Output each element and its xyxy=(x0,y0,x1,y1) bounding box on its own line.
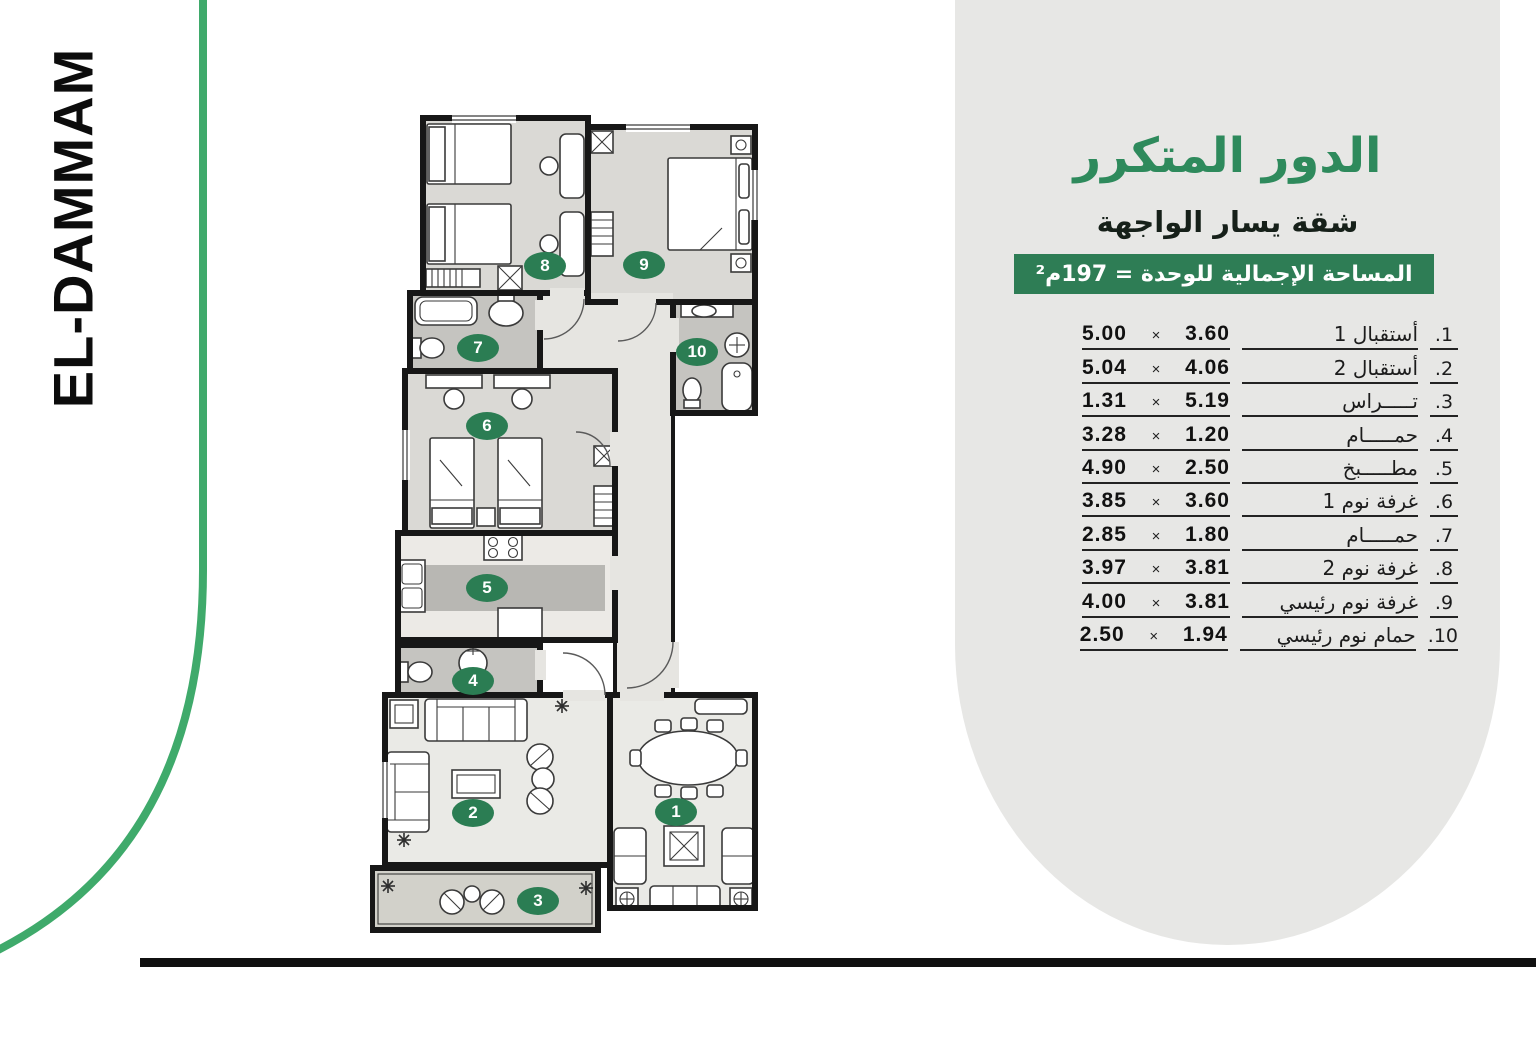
room-name: غرفة نوم 2 xyxy=(1242,556,1418,584)
room-badge-5: 5 xyxy=(466,574,508,602)
room-badge-1: 1 xyxy=(655,798,697,826)
room-name: حمام نوم رئيسي xyxy=(1240,623,1416,651)
room-width: 5.04 xyxy=(1082,356,1127,380)
room-dimension-row: 9. غرفة نوم رئيسي 4.00 × 3.81 xyxy=(1007,584,1458,617)
room-dimension-row: 1. أستقبال 1 5.00 × 3.60 xyxy=(1007,317,1458,350)
brochure-page: EL-DAMMAM xyxy=(0,0,1536,1057)
room-width: 2.50 xyxy=(1080,623,1125,647)
room-height: 1.94 xyxy=(1183,623,1228,647)
room-number: 7. xyxy=(1430,525,1458,551)
room-height: 2.50 xyxy=(1185,456,1230,480)
room-dimensions: 2.85 × 1.80 xyxy=(1082,523,1230,551)
room-number: 5. xyxy=(1430,458,1458,484)
room-dimension-row: 6. غرفة نوم 1 3.85 × 3.60 xyxy=(1007,484,1458,517)
times-symbol: × xyxy=(1152,461,1161,478)
room-height: 1.80 xyxy=(1185,523,1230,547)
room-badge-9: 9 xyxy=(623,251,665,279)
times-symbol: × xyxy=(1152,327,1161,344)
room-dimensions: 2.50 × 1.94 xyxy=(1080,623,1228,651)
room-badge-8: 8 xyxy=(524,252,566,280)
room-badge-2: 2 xyxy=(452,799,494,827)
room-dimensions: 5.00 × 3.60 xyxy=(1082,322,1230,350)
times-symbol: × xyxy=(1152,561,1161,578)
room-number: 6. xyxy=(1430,491,1458,517)
room-badge-4: 4 xyxy=(452,667,494,695)
times-symbol: × xyxy=(1149,628,1158,645)
total-area-banner: المساحة الإجمالية للوحدة = 197م² xyxy=(1014,254,1434,294)
room-width: 2.85 xyxy=(1082,523,1127,547)
room-height: 3.81 xyxy=(1185,556,1230,580)
room-dimension-row: 8. غرفة نوم 2 3.97 × 3.81 xyxy=(1007,551,1458,584)
times-symbol: × xyxy=(1152,595,1161,612)
room-dimensions: 3.97 × 3.81 xyxy=(1082,556,1230,584)
room-name: غرفة نوم رئيسي xyxy=(1242,590,1418,618)
room-width: 3.85 xyxy=(1082,489,1127,513)
room-height: 3.60 xyxy=(1185,489,1230,513)
room-number: 8. xyxy=(1430,558,1458,584)
room-height: 1.20 xyxy=(1185,423,1230,447)
room-number: 2. xyxy=(1430,358,1458,384)
room-height: 3.81 xyxy=(1185,590,1230,614)
room-height: 3.60 xyxy=(1185,322,1230,346)
page-title: الدور المتكرر xyxy=(955,128,1500,184)
floor-plan-drawing xyxy=(370,110,772,955)
room-name: حمـــــام xyxy=(1242,423,1418,451)
room-dimensions: 1.31 × 5.19 xyxy=(1082,389,1230,417)
room-name: حمـــــام xyxy=(1242,523,1418,551)
page-subtitle: شقة يسار الواجهة xyxy=(955,205,1500,239)
room-number: 4. xyxy=(1430,425,1458,451)
info-panel: الدور المتكرر شقة يسار الواجهة المساحة ا… xyxy=(955,0,1500,945)
times-symbol: × xyxy=(1152,361,1161,378)
room-dimensions: 3.28 × 1.20 xyxy=(1082,423,1230,451)
room-badge-7: 7 xyxy=(457,334,499,362)
room-width: 5.00 xyxy=(1082,322,1127,346)
room-dimension-row: 2. أستقبال 2 5.04 × 4.06 xyxy=(1007,350,1458,383)
room-badge-10: 10 xyxy=(676,338,718,366)
times-symbol: × xyxy=(1152,494,1161,511)
times-symbol: × xyxy=(1152,528,1161,545)
room-number: 3. xyxy=(1430,391,1458,417)
room-number: 10. xyxy=(1428,625,1458,651)
room-dimension-row: 4. حمـــــام 3.28 × 1.20 xyxy=(1007,417,1458,450)
room-dimensions: 5.04 × 4.06 xyxy=(1082,356,1230,384)
room-name: أستقبال 1 xyxy=(1242,322,1418,350)
room-height: 5.19 xyxy=(1185,389,1230,413)
room-name: غرفة نوم 1 xyxy=(1242,489,1418,517)
room-number: 9. xyxy=(1430,592,1458,618)
times-symbol: × xyxy=(1152,394,1161,411)
room-dimension-list: 1. أستقبال 1 5.00 × 3.60 2. أستقبال 2 5.… xyxy=(1007,317,1458,651)
room-dimension-row: 3. تـــــراس 1.31 × 5.19 xyxy=(1007,384,1458,417)
room-width: 3.97 xyxy=(1082,556,1127,580)
times-symbol: × xyxy=(1152,428,1161,445)
room-dimensions: 3.85 × 3.60 xyxy=(1082,489,1230,517)
room-dimension-row: 10. حمام نوم رئيسي 2.50 × 1.94 xyxy=(1007,618,1458,651)
room-width: 1.31 xyxy=(1082,389,1127,413)
room-badge-3: 3 xyxy=(517,887,559,915)
room-name: مطـــــبخ xyxy=(1242,456,1418,484)
room-dimension-row: 7. حمـــــام 2.85 × 1.80 xyxy=(1007,517,1458,550)
room-name: أستقبال 2 xyxy=(1242,356,1418,384)
room-badge-6: 6 xyxy=(466,412,508,440)
room-dimensions: 4.00 × 3.81 xyxy=(1082,590,1230,618)
room-dimensions: 4.90 × 2.50 xyxy=(1082,456,1230,484)
room-height: 4.06 xyxy=(1185,356,1230,380)
room-name: تـــــراس xyxy=(1242,389,1418,417)
room-number: 1. xyxy=(1430,324,1458,350)
room-width: 3.28 xyxy=(1082,423,1127,447)
room-width: 4.00 xyxy=(1082,590,1127,614)
room-width: 4.90 xyxy=(1082,456,1127,480)
room-dimension-row: 5. مطـــــبخ 4.90 × 2.50 xyxy=(1007,451,1458,484)
